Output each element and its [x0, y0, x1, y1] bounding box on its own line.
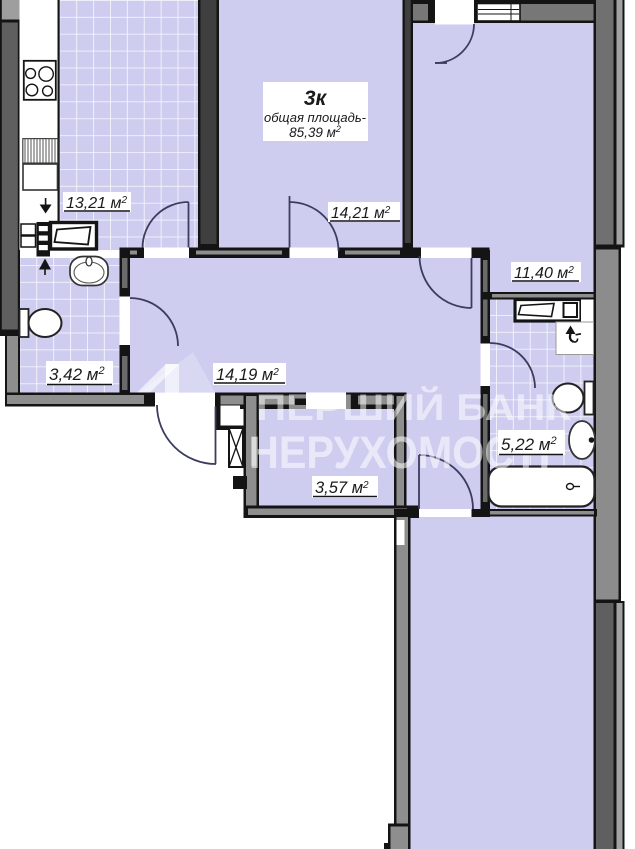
svg-text:13,21 м2: 13,21 м2 — [66, 195, 127, 212]
svg-text:14,19 м2: 14,19 м2 — [216, 366, 279, 384]
svg-text:14,21 м2: 14,21 м2 — [331, 205, 391, 222]
svg-text:3к: 3к — [304, 87, 328, 110]
svg-text:3,57 м2: 3,57 м2 — [315, 479, 369, 497]
svg-text:3,42 м2: 3,42 м2 — [49, 365, 105, 384]
svg-text:85,39 м2: 85,39 м2 — [289, 124, 341, 140]
svg-text:общая площадь-: общая площадь- — [264, 110, 367, 125]
svg-text:ПЕРШИЙ БАНК: ПЕРШИЙ БАНК — [256, 386, 571, 428]
svg-text:11,40 м2: 11,40 м2 — [514, 265, 574, 282]
svg-text:5,22 м2: 5,22 м2 — [501, 435, 557, 454]
